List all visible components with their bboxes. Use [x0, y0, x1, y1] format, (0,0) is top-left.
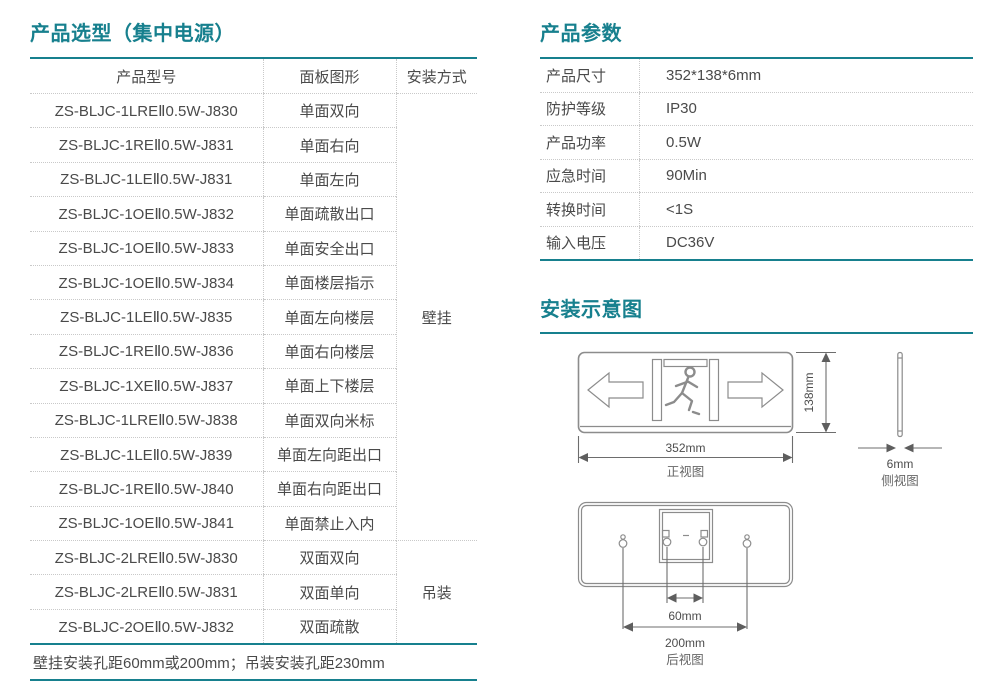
front-height-label: 138mm — [802, 372, 816, 412]
graphic-cell: 单面楼层指示 — [263, 265, 396, 299]
parameter-label: 产品尺寸 — [540, 58, 640, 92]
graphic-cell: 双面双向 — [263, 541, 396, 575]
parameter-row: 转换时间<1S — [540, 193, 973, 227]
right-arrow-icon — [728, 373, 783, 407]
graphic-cell: 双面疏散 — [263, 609, 396, 644]
thickness-dimension: 6mm — [858, 444, 942, 471]
right-panel: 产品参数 产品尺寸352*138*6mm防护等级IP30产品功率0.5W应急时间… — [540, 22, 973, 261]
selection-title: 产品选型（集中电源） — [30, 22, 477, 57]
parameter-row: 应急时间90Min — [540, 159, 973, 193]
model-cell: ZS-BLJC-1OEⅡ0.5W-J833 — [30, 231, 263, 265]
model-cell: ZS-BLJC-2LREⅡ0.5W-J830 — [30, 541, 263, 575]
graphic-cell: 单面上下楼层 — [263, 369, 396, 403]
height-dimension: 138mm — [796, 353, 836, 433]
hole-pitch-200-label: 200mm — [665, 636, 705, 650]
graphic-cell: 单面双向 — [263, 94, 396, 128]
left-arrow-icon — [588, 373, 643, 407]
side-thickness-label: 6mm — [887, 457, 914, 471]
model-cell: ZS-BLJC-1LEⅡ0.5W-J835 — [30, 300, 263, 334]
selection-section: 产品选型（集中电源） 产品型号 面板图形 安装方式 ZS-BLJC-1LREⅡ0… — [30, 22, 477, 681]
column-header-mount: 安装方式 — [396, 58, 477, 94]
parameter-value: <1S — [640, 193, 974, 227]
rear-view-diagram: 60mm 200mm 后视图 — [540, 495, 973, 687]
model-cell: ZS-BLJC-1LEⅡ0.5W-J831 — [30, 162, 263, 196]
exit-sign-side-view — [898, 353, 902, 437]
selection-row: ZS-BLJC-1LREⅡ0.5W-J830单面双向壁挂 — [30, 94, 477, 128]
parameter-row: 防护等级IP30 — [540, 92, 973, 126]
model-cell: ZS-BLJC-1OEⅡ0.5W-J832 — [30, 197, 263, 231]
model-cell: ZS-BLJC-1LEⅡ0.5W-J839 — [30, 437, 263, 471]
front-side-view-diagram: 138mm 352mm 正视图 6mm 侧视图 — [540, 345, 973, 495]
graphic-cell: 单面双向米标 — [263, 403, 396, 437]
model-cell: ZS-BLJC-1REⅡ0.5W-J836 — [30, 334, 263, 368]
exit-sign-front-view — [579, 353, 793, 433]
parameter-value: 352*138*6mm — [640, 58, 974, 92]
page: { "colors":{"accent":"#17808E","body_tex… — [0, 0, 994, 687]
model-cell: ZS-BLJC-1LREⅡ0.5W-J838 — [30, 403, 263, 437]
column-header-model: 产品型号 — [30, 58, 263, 94]
parameter-row: 输入电压DC36V — [540, 226, 973, 260]
selection-table: 产品型号 面板图形 安装方式 ZS-BLJC-1LREⅡ0.5W-J830单面双… — [30, 57, 477, 681]
keyhole-right-icon — [743, 535, 751, 548]
parameter-value: DC36V — [640, 226, 974, 260]
graphic-cell: 单面右向 — [263, 128, 396, 162]
width-dimension: 352mm — [579, 436, 793, 463]
graphic-cell: 单面禁止入内 — [263, 506, 396, 540]
model-cell: ZS-BLJC-1OEⅡ0.5W-J841 — [30, 506, 263, 540]
parameter-label: 产品功率 — [540, 126, 640, 160]
model-cell: ZS-BLJC-1XEⅡ0.5W-J837 — [30, 369, 263, 403]
graphic-cell: 单面安全出口 — [263, 231, 396, 265]
graphic-cell: 单面疏散出口 — [263, 197, 396, 231]
model-cell: ZS-BLJC-2LREⅡ0.5W-J831 — [30, 575, 263, 609]
parameter-label: 防护等级 — [540, 92, 640, 126]
selection-row: ZS-BLJC-2LREⅡ0.5W-J830双面双向吊装 — [30, 541, 477, 575]
graphic-cell: 单面左向 — [263, 162, 396, 196]
front-width-label: 352mm — [665, 441, 705, 455]
hole-pitch-60-label: 60mm — [668, 609, 701, 623]
mount-cell: 壁挂 — [396, 94, 477, 541]
parameter-label: 应急时间 — [540, 159, 640, 193]
parameter-row: 产品尺寸352*138*6mm — [540, 58, 973, 92]
graphic-cell: 单面右向楼层 — [263, 334, 396, 368]
parameters-table-body: 产品尺寸352*138*6mm防护等级IP30产品功率0.5W应急时间90Min… — [540, 58, 973, 260]
rear-view-label: 后视图 — [666, 652, 704, 667]
parameter-label: 转换时间 — [540, 193, 640, 227]
installation-title: 安装示意图 — [540, 298, 973, 334]
selection-footnote: 壁挂安装孔距60mm或200mm；吊装安装孔距230mm — [30, 644, 477, 680]
mount-cell: 吊装 — [396, 541, 477, 645]
graphic-cell: 单面左向距出口 — [263, 437, 396, 471]
model-cell: ZS-BLJC-1REⅡ0.5W-J831 — [30, 128, 263, 162]
model-cell: ZS-BLJC-1REⅡ0.5W-J840 — [30, 472, 263, 506]
side-view-label: 侧视图 — [881, 473, 919, 488]
hole-pitch-60-dimension: 60mm — [667, 547, 703, 623]
hole-pitch-200-dimension: 200mm — [623, 548, 747, 650]
parameter-row: 产品功率0.5W — [540, 126, 973, 160]
model-cell: ZS-BLJC-1OEⅡ0.5W-J834 — [30, 265, 263, 299]
graphic-cell: 双面单向 — [263, 575, 396, 609]
column-header-graphic: 面板图形 — [263, 58, 396, 94]
parameter-value: IP30 — [640, 92, 974, 126]
selection-footnote-row: 壁挂安装孔距60mm或200mm；吊装安装孔距230mm — [30, 644, 477, 680]
front-view-label: 正视图 — [667, 464, 705, 479]
running-man-icon — [666, 368, 699, 415]
graphic-cell: 单面左向楼层 — [263, 300, 396, 334]
installation-section: 安装示意图 — [540, 298, 973, 334]
parameters-table: 产品尺寸352*138*6mm防护等级IP30产品功率0.5W应急时间90Min… — [540, 57, 973, 261]
model-cell: ZS-BLJC-2OEⅡ0.5W-J832 — [30, 609, 263, 644]
parameter-value: 90Min — [640, 159, 974, 193]
graphic-cell: 单面右向距出口 — [263, 472, 396, 506]
parameter-value: 0.5W — [640, 126, 974, 160]
parameter-label: 输入电压 — [540, 226, 640, 260]
exit-sign-rear-view — [579, 503, 793, 587]
selection-table-body: ZS-BLJC-1LREⅡ0.5W-J830单面双向壁挂ZS-BLJC-1REⅡ… — [30, 94, 477, 645]
keyhole-left-icon — [619, 535, 627, 548]
selection-header-row: 产品型号 面板图形 安装方式 — [30, 58, 477, 94]
parameters-title: 产品参数 — [540, 22, 973, 57]
model-cell: ZS-BLJC-1LREⅡ0.5W-J830 — [30, 94, 263, 128]
